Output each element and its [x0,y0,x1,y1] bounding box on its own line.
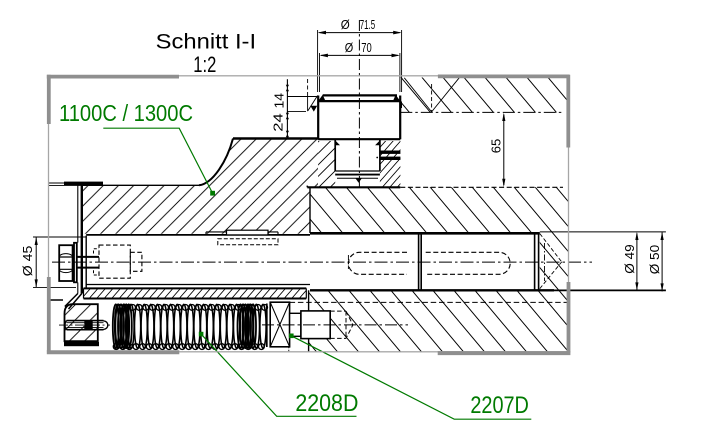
svg-text:70: 70 [361,40,372,55]
svg-text:Ø: Ø [341,17,350,32]
svg-text:Ø 50: Ø 50 [648,245,662,275]
svg-text:24: 24 [271,113,285,132]
svg-text:Ø 45: Ø 45 [21,246,35,277]
svg-text:1:2: 1:2 [193,52,216,77]
svg-text:1100C / 1300C: 1100C / 1300C [59,100,193,126]
svg-text:Ø 49: Ø 49 [623,244,637,274]
svg-text:2207D: 2207D [470,392,529,419]
svg-text:Ø: Ø [345,40,354,55]
svg-text:14: 14 [273,93,287,109]
svg-text:Schnitt I-I: Schnitt I-I [156,31,257,54]
svg-text:71.5: 71.5 [360,17,376,32]
svg-text:2208D: 2208D [295,390,358,417]
svg-text:65: 65 [490,139,504,154]
